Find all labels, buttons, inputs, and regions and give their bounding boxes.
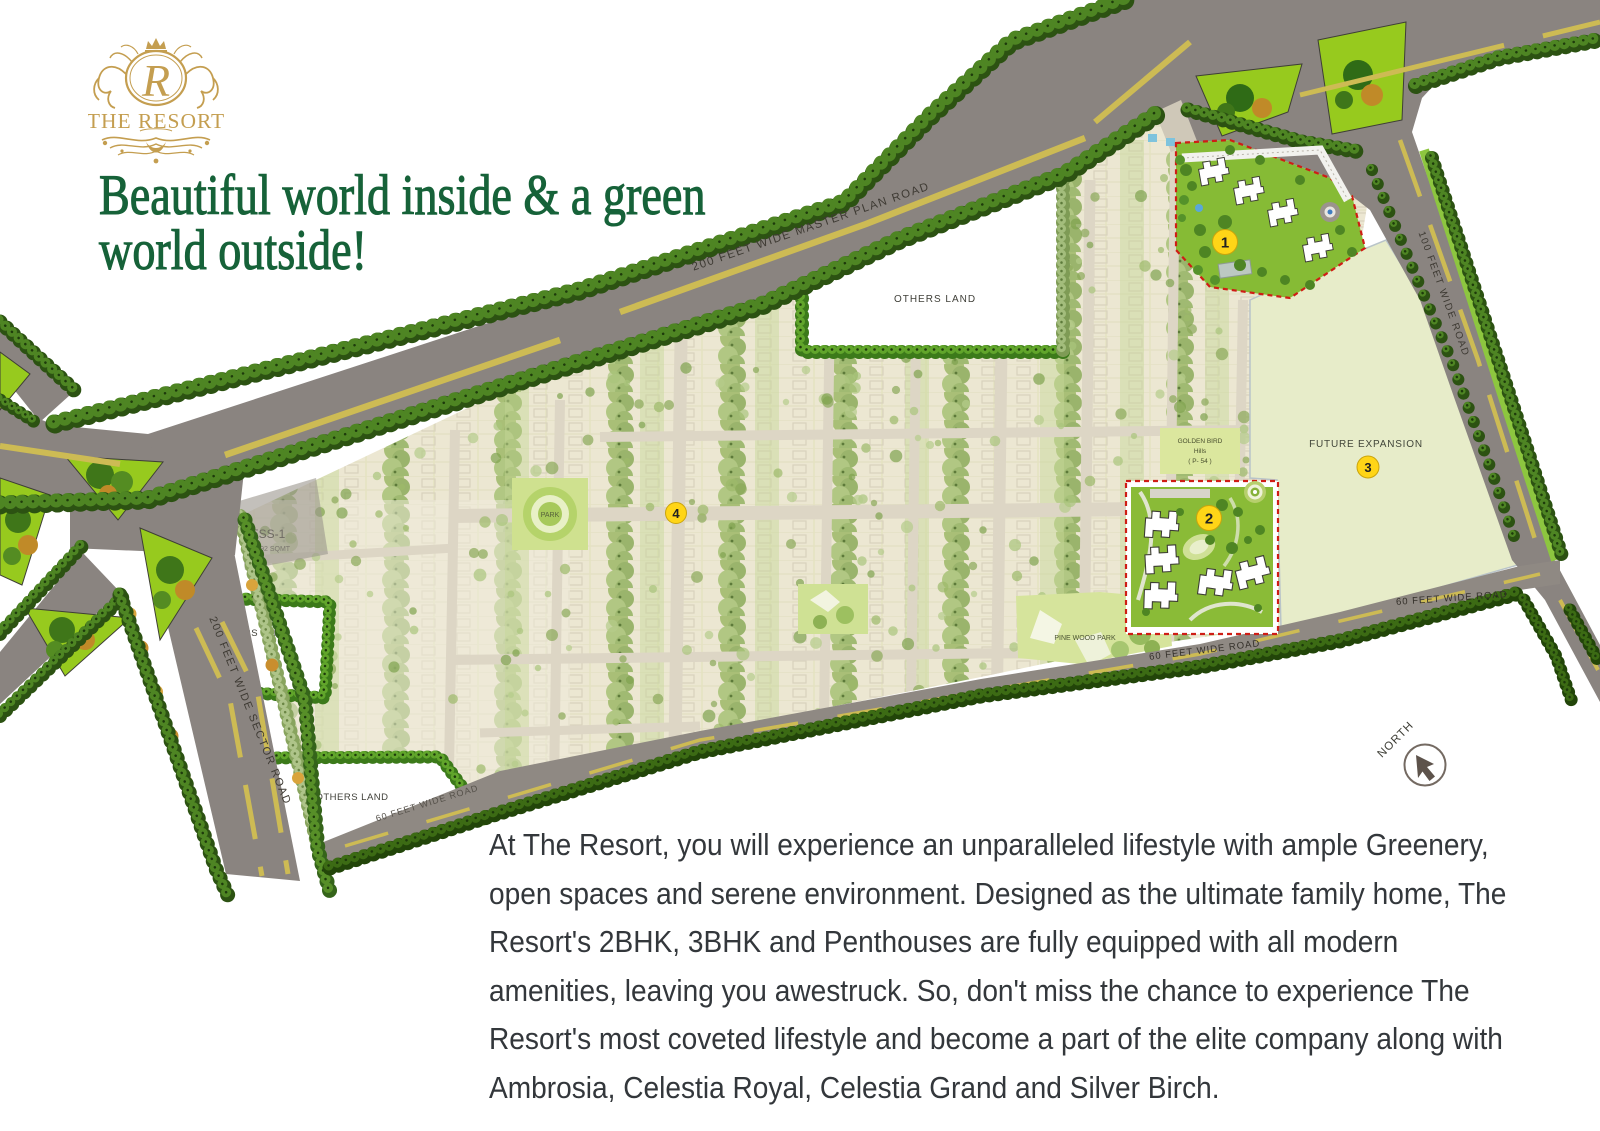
svg-text:THE RESORT: THE RESORT bbox=[88, 109, 225, 133]
svg-text:Hills: Hills bbox=[1194, 448, 1207, 455]
svg-text:4: 4 bbox=[672, 506, 680, 521]
svg-text:R: R bbox=[141, 55, 170, 106]
svg-text:3: 3 bbox=[1364, 460, 1371, 475]
svg-text:FUTURE EXPANSION: FUTURE EXPANSION bbox=[1309, 439, 1423, 450]
svg-text:PARK: PARK bbox=[541, 512, 560, 519]
svg-text:OTHERS LAND: OTHERS LAND bbox=[315, 792, 388, 803]
svg-text:GOLDEN BIRD: GOLDEN BIRD bbox=[1178, 438, 1223, 445]
svg-text:1: 1 bbox=[1221, 235, 1229, 252]
svg-text:PINE WOOD PARK: PINE WOOD PARK bbox=[1054, 635, 1116, 642]
svg-text:2: 2 bbox=[1205, 511, 1213, 528]
svg-text:( P- 54 ): ( P- 54 ) bbox=[1188, 458, 1211, 465]
svg-text:OTHERS LAND: OTHERS LAND bbox=[894, 294, 976, 305]
